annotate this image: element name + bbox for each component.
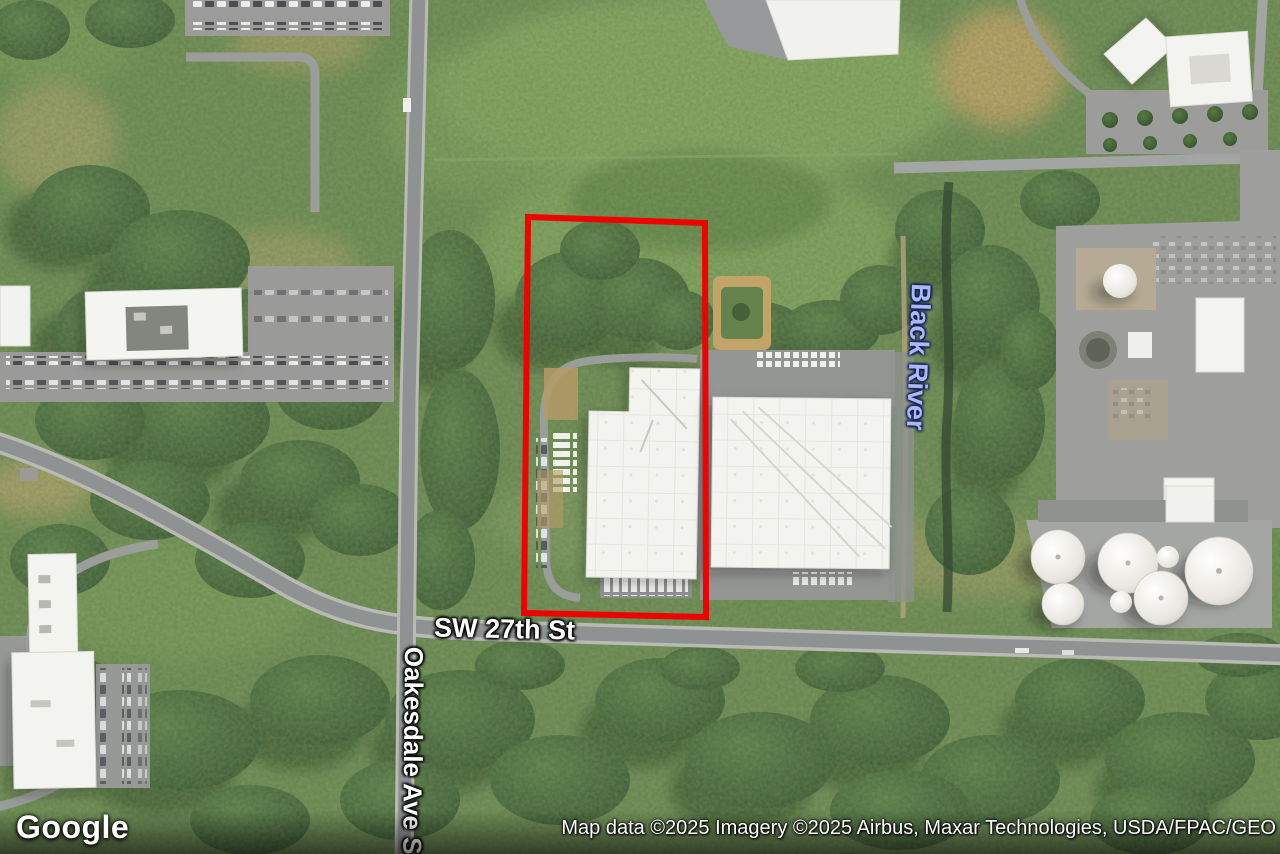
map-viewport[interactable]: SW 27th St Oakesdale Ave S Black River G…: [0, 0, 1280, 854]
black-river-channel: [946, 182, 949, 612]
google-logo[interactable]: Google: [16, 809, 129, 846]
street-label-sw-27th-st: SW 27th St: [434, 613, 576, 647]
retention-pond: [713, 276, 771, 350]
water-label-black-river: Black River: [900, 283, 936, 431]
street-label-oakesdale-ave-s: Oakesdale Ave S: [396, 647, 429, 854]
attribution-text[interactable]: Map data ©2025 Imagery ©2025 Airbus, Max…: [561, 817, 1276, 840]
satellite-imagery: [0, 0, 1280, 854]
